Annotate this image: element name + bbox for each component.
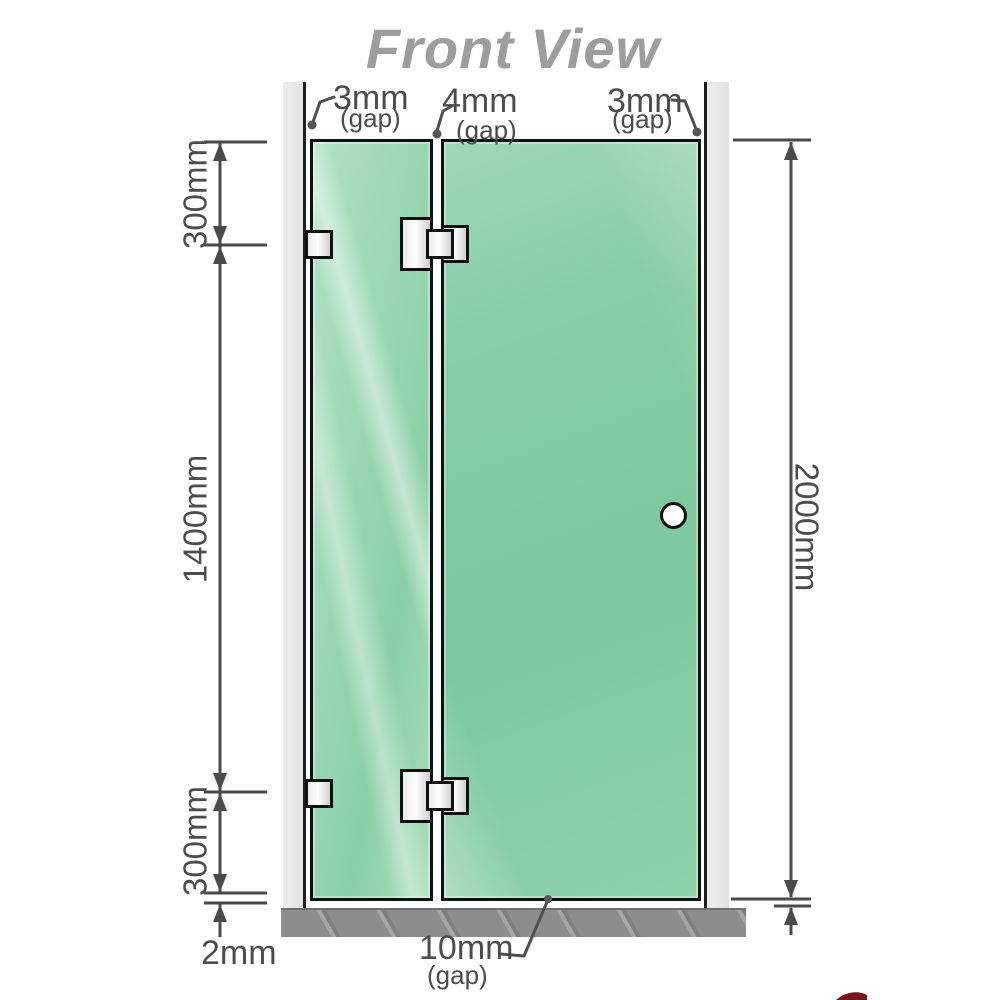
leader-dots	[308, 121, 702, 904]
gap-note-bottom: (gap)	[427, 962, 488, 988]
gap-note-top-left: (gap)	[340, 105, 401, 131]
dimension-right-total: 2000mm	[791, 463, 824, 591]
front-view-diagram: Front View	[0, 0, 1000, 1000]
arrow-up-icon	[213, 246, 227, 264]
leader-gap-top-left	[313, 97, 334, 122]
arrow-down-icon	[213, 874, 227, 892]
dimension-left-top: 300mm	[179, 139, 212, 249]
arrow-down-icon	[213, 773, 227, 791]
leader-dot-icon	[693, 128, 702, 137]
arrow-up-icon	[213, 143, 227, 161]
dimension-lines-layer	[0, 0, 1000, 1000]
arrow-up-icon	[784, 907, 798, 925]
leader-dot-icon	[433, 130, 442, 139]
cropped-logo-mark	[836, 992, 867, 1000]
floor-offset-label: 2mm	[201, 936, 277, 970]
arrow-up-icon	[784, 142, 798, 160]
gap-label-top-middle: 4mm	[442, 84, 518, 118]
leader-dot-icon	[544, 895, 552, 903]
arrow-down-icon	[784, 880, 798, 898]
arrow-down-icon	[213, 226, 227, 244]
dimension-left-middle: 1400mm	[179, 455, 212, 583]
arrow-up-icon	[213, 793, 227, 811]
gap-note-top-right: (gap)	[612, 106, 673, 132]
leader-dot-icon	[308, 121, 317, 130]
leader-lines	[313, 97, 696, 956]
arrow-up-icon	[213, 904, 227, 922]
gap-note-top-middle: (gap)	[456, 117, 517, 143]
dimension-left-bottom: 300mm	[179, 786, 212, 896]
